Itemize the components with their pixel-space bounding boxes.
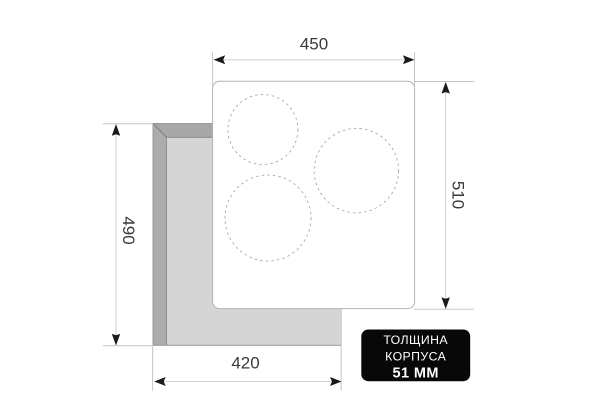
svg-text:ТОЛЩИНА: ТОЛЩИНА <box>383 333 448 347</box>
svg-text:490: 490 <box>119 216 138 244</box>
svg-text:450: 450 <box>300 35 328 54</box>
svg-text:51 ММ: 51 ММ <box>393 365 439 381</box>
svg-text:КОРПУСА: КОРПУСА <box>385 349 446 363</box>
svg-text:510: 510 <box>449 181 468 209</box>
svg-text:420: 420 <box>231 354 259 373</box>
